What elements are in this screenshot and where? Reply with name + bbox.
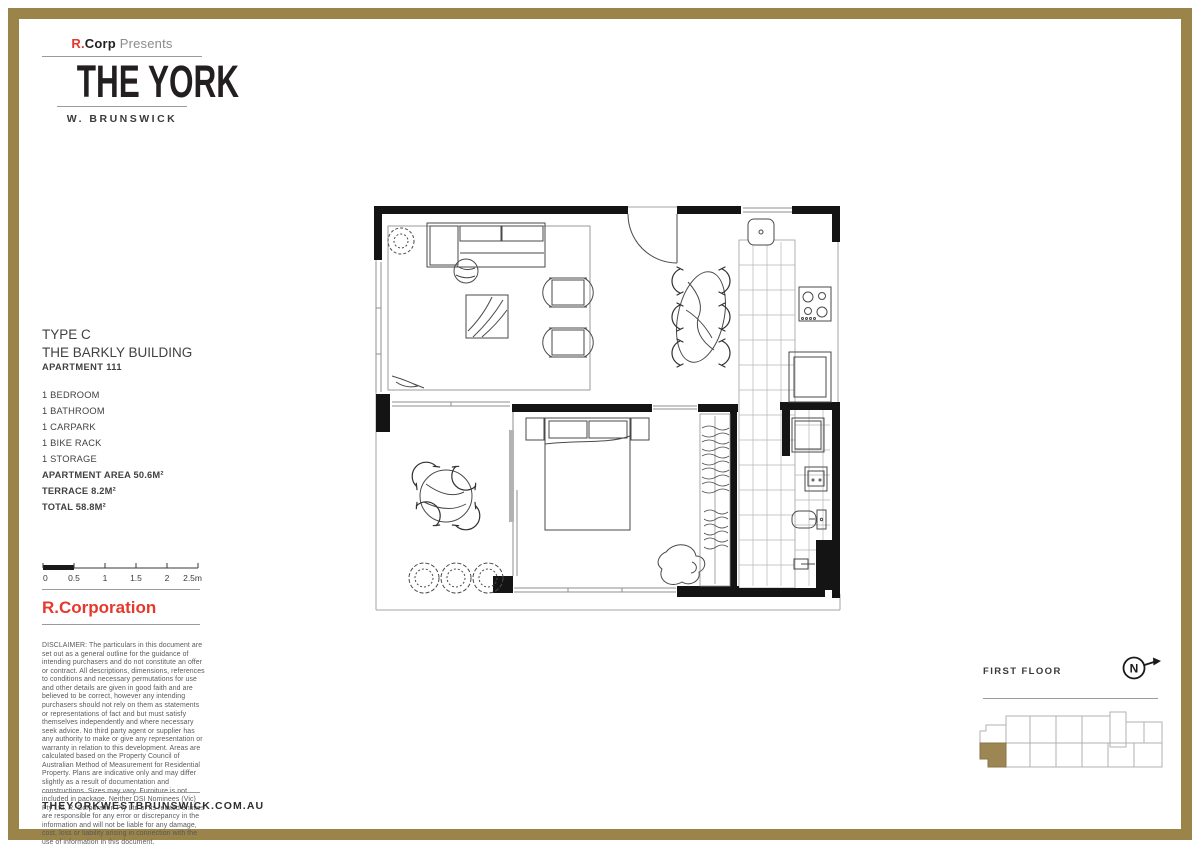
area-item: TERRACE 8.2M² xyxy=(42,484,164,500)
vanity-basin xyxy=(805,467,827,491)
entry-door xyxy=(628,214,677,263)
area-list: APARTMENT AREA 50.6M² TERRACE 8.2M² TOTA… xyxy=(42,468,164,516)
floor-plan xyxy=(368,190,848,622)
apartment-number: APARTMENT 111 xyxy=(42,362,122,372)
sliding-door-panel xyxy=(509,430,514,522)
feature-item: 1 BEDROOM xyxy=(42,388,105,404)
brand-presents-line: R.Corp Presents xyxy=(42,36,202,51)
bedroom-chair xyxy=(658,545,705,585)
living-room-floor xyxy=(388,226,590,390)
floor-label: FIRST FLOOR xyxy=(983,666,1062,677)
website-link[interactable]: THEYORKWESTBRUNSWICK.COM.AU xyxy=(42,800,264,812)
scale-tick-label: 2.5m xyxy=(183,573,202,583)
north-letter: N xyxy=(1130,662,1139,676)
developer-logo: R.Corporation xyxy=(42,598,156,618)
building-key-plan xyxy=(978,710,1168,782)
feature-item: 1 BIKE RACK xyxy=(42,436,105,452)
area-item: TOTAL 58.8M² xyxy=(42,500,164,516)
divider xyxy=(42,624,200,625)
scale-tick-label: 2 xyxy=(165,573,170,583)
dining-table xyxy=(669,267,733,367)
feature-list: 1 BEDROOM 1 BATHROOM 1 CARPARK 1 BIKE RA… xyxy=(42,388,105,468)
rug xyxy=(466,295,508,338)
scale-bar-solid-segment xyxy=(43,565,74,570)
window-lines xyxy=(376,208,792,592)
armchairs xyxy=(543,278,593,357)
page-title: THE YORK xyxy=(77,59,239,104)
brand-presents: Presents xyxy=(116,36,173,51)
divider xyxy=(42,589,200,590)
north-arrow-icon: N xyxy=(1120,652,1164,684)
shower xyxy=(792,418,824,452)
scale-tick-label: 1 xyxy=(103,573,108,583)
decor-leaf xyxy=(392,376,424,388)
plant xyxy=(388,228,414,254)
scale-tick-label: 0.5 xyxy=(68,573,80,583)
sofa xyxy=(427,223,545,267)
brand-block: R.Corp Presents THE YORK W. BRUNSWICK xyxy=(42,36,202,125)
terrace-plants xyxy=(409,563,503,593)
unit-type-heading: TYPE C THE BARKLY BUILDING xyxy=(42,326,252,361)
scale-tick-label: 0 xyxy=(43,573,48,583)
scale-bar: 0 0.5 1 1.5 2 2.5m xyxy=(42,561,210,585)
brand-r-mark: R. xyxy=(71,36,84,51)
disclaimer-text: DISCLAIMER: The particulars in this docu… xyxy=(42,642,205,848)
highlighted-unit xyxy=(980,743,1006,767)
wardrobe xyxy=(700,414,730,586)
cooktop xyxy=(799,287,831,321)
area-item: APARTMENT AREA 50.6M² xyxy=(42,468,164,484)
ottoman xyxy=(454,259,478,283)
unit-type-line2: THE BARKLY BUILDING xyxy=(42,344,252,362)
scale-tick-label: 1.5 xyxy=(130,573,142,583)
kitchen-sink xyxy=(748,219,774,245)
brand-location: W. BRUNSWICK xyxy=(42,113,202,125)
unit-type-line1: TYPE C xyxy=(42,326,252,344)
feature-item: 1 BATHROOM xyxy=(42,404,105,420)
divider xyxy=(42,792,200,793)
brand-corp: Corp xyxy=(85,36,116,51)
bath-accessory xyxy=(794,559,815,569)
feature-item: 1 CARPARK xyxy=(42,420,105,436)
building-outline xyxy=(980,712,1162,767)
bed xyxy=(526,418,649,530)
divider xyxy=(983,698,1158,699)
terrace-table xyxy=(420,470,472,522)
feature-item: 1 STORAGE xyxy=(42,452,105,468)
